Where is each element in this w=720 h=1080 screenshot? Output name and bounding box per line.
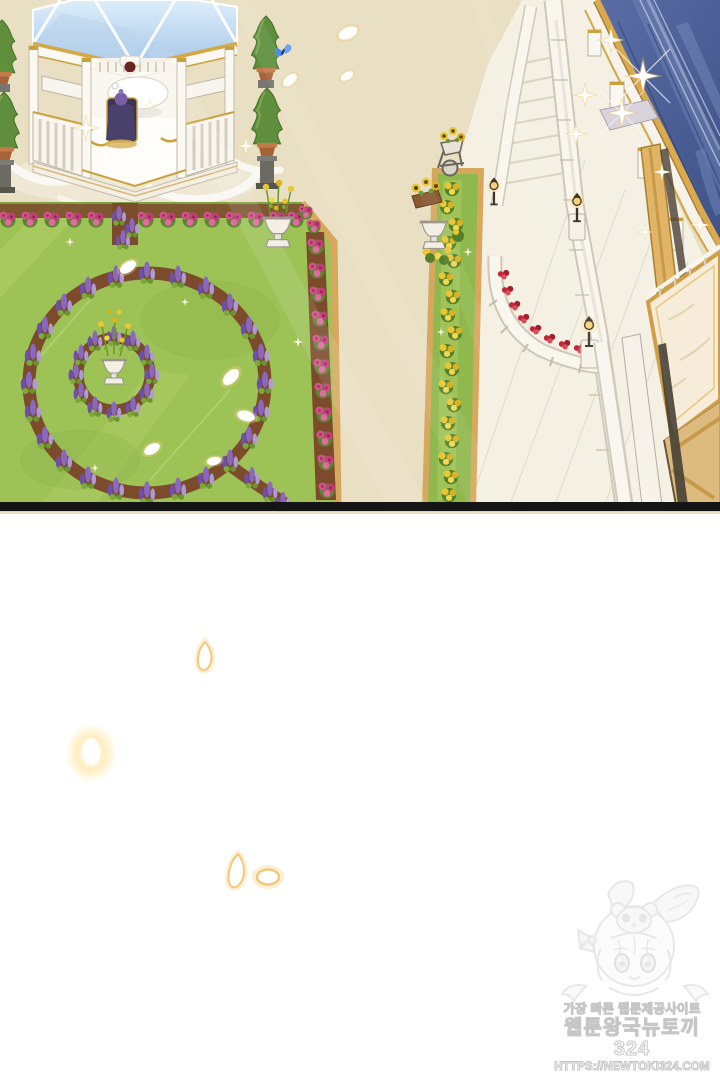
watermark-url: HTTPS://NEWTOKI324.COM (546, 1060, 718, 1075)
petal-glow (65, 723, 117, 783)
site-watermark: 가장 빠른 웹툰제공사이트 웹툰왕국뉴토끼324 HTTPS://NEWTOKI… (546, 1001, 718, 1075)
petal (198, 642, 212, 670)
watermark-sitename: 웹툰왕국뉴토끼324 (546, 1018, 718, 1060)
webtoon-page: 가장 빠른 웹툰제공사이트 웹툰왕국뉴토끼324 HTTPS://NEWTOKI… (0, 0, 720, 1080)
parterre-garden (0, 203, 338, 512)
person-seated-top (120, 56, 140, 75)
mascot-sketch (556, 876, 720, 1008)
watermark-tagline: 가장 빠른 웹툰제공사이트 (546, 1001, 718, 1018)
artwork-panel (0, 0, 720, 514)
panel-border (0, 502, 720, 511)
petal (255, 868, 281, 886)
garden-scene-illustration (0, 0, 720, 514)
petal (228, 854, 244, 887)
